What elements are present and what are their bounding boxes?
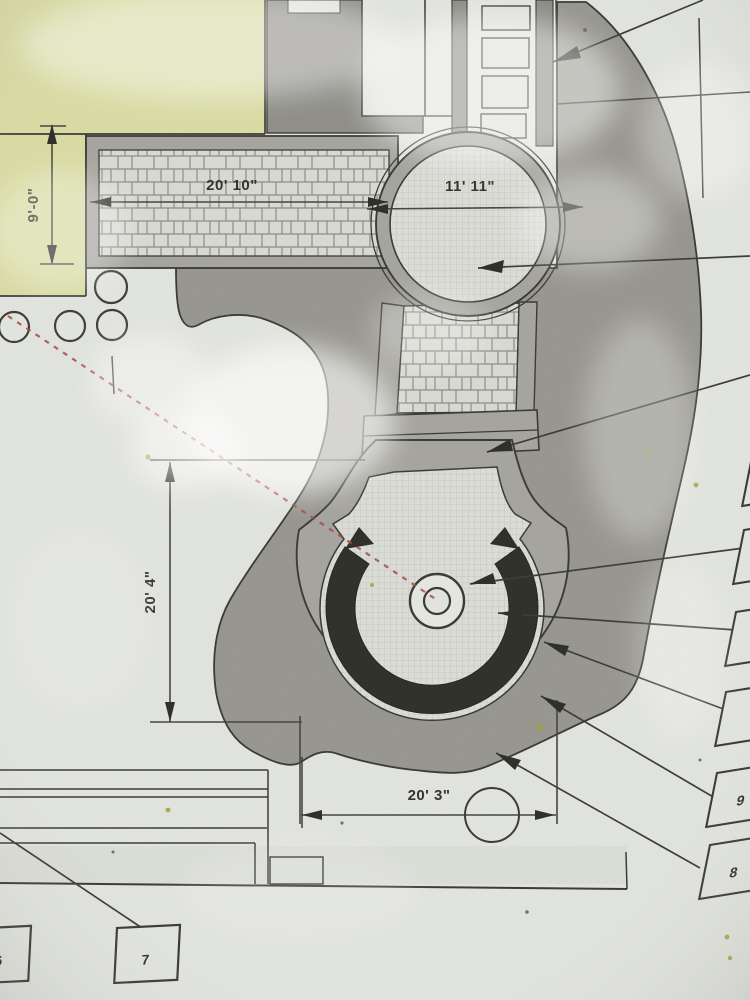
site-plan-photo: 9'-0" 20' 10" 11' 11" 20' 4" 20' 3": [0, 0, 750, 1000]
vignette: [0, 0, 750, 1000]
site-plan-drawing: 9'-0" 20' 10" 11' 11" 20' 4" 20' 3": [0, 0, 750, 1000]
